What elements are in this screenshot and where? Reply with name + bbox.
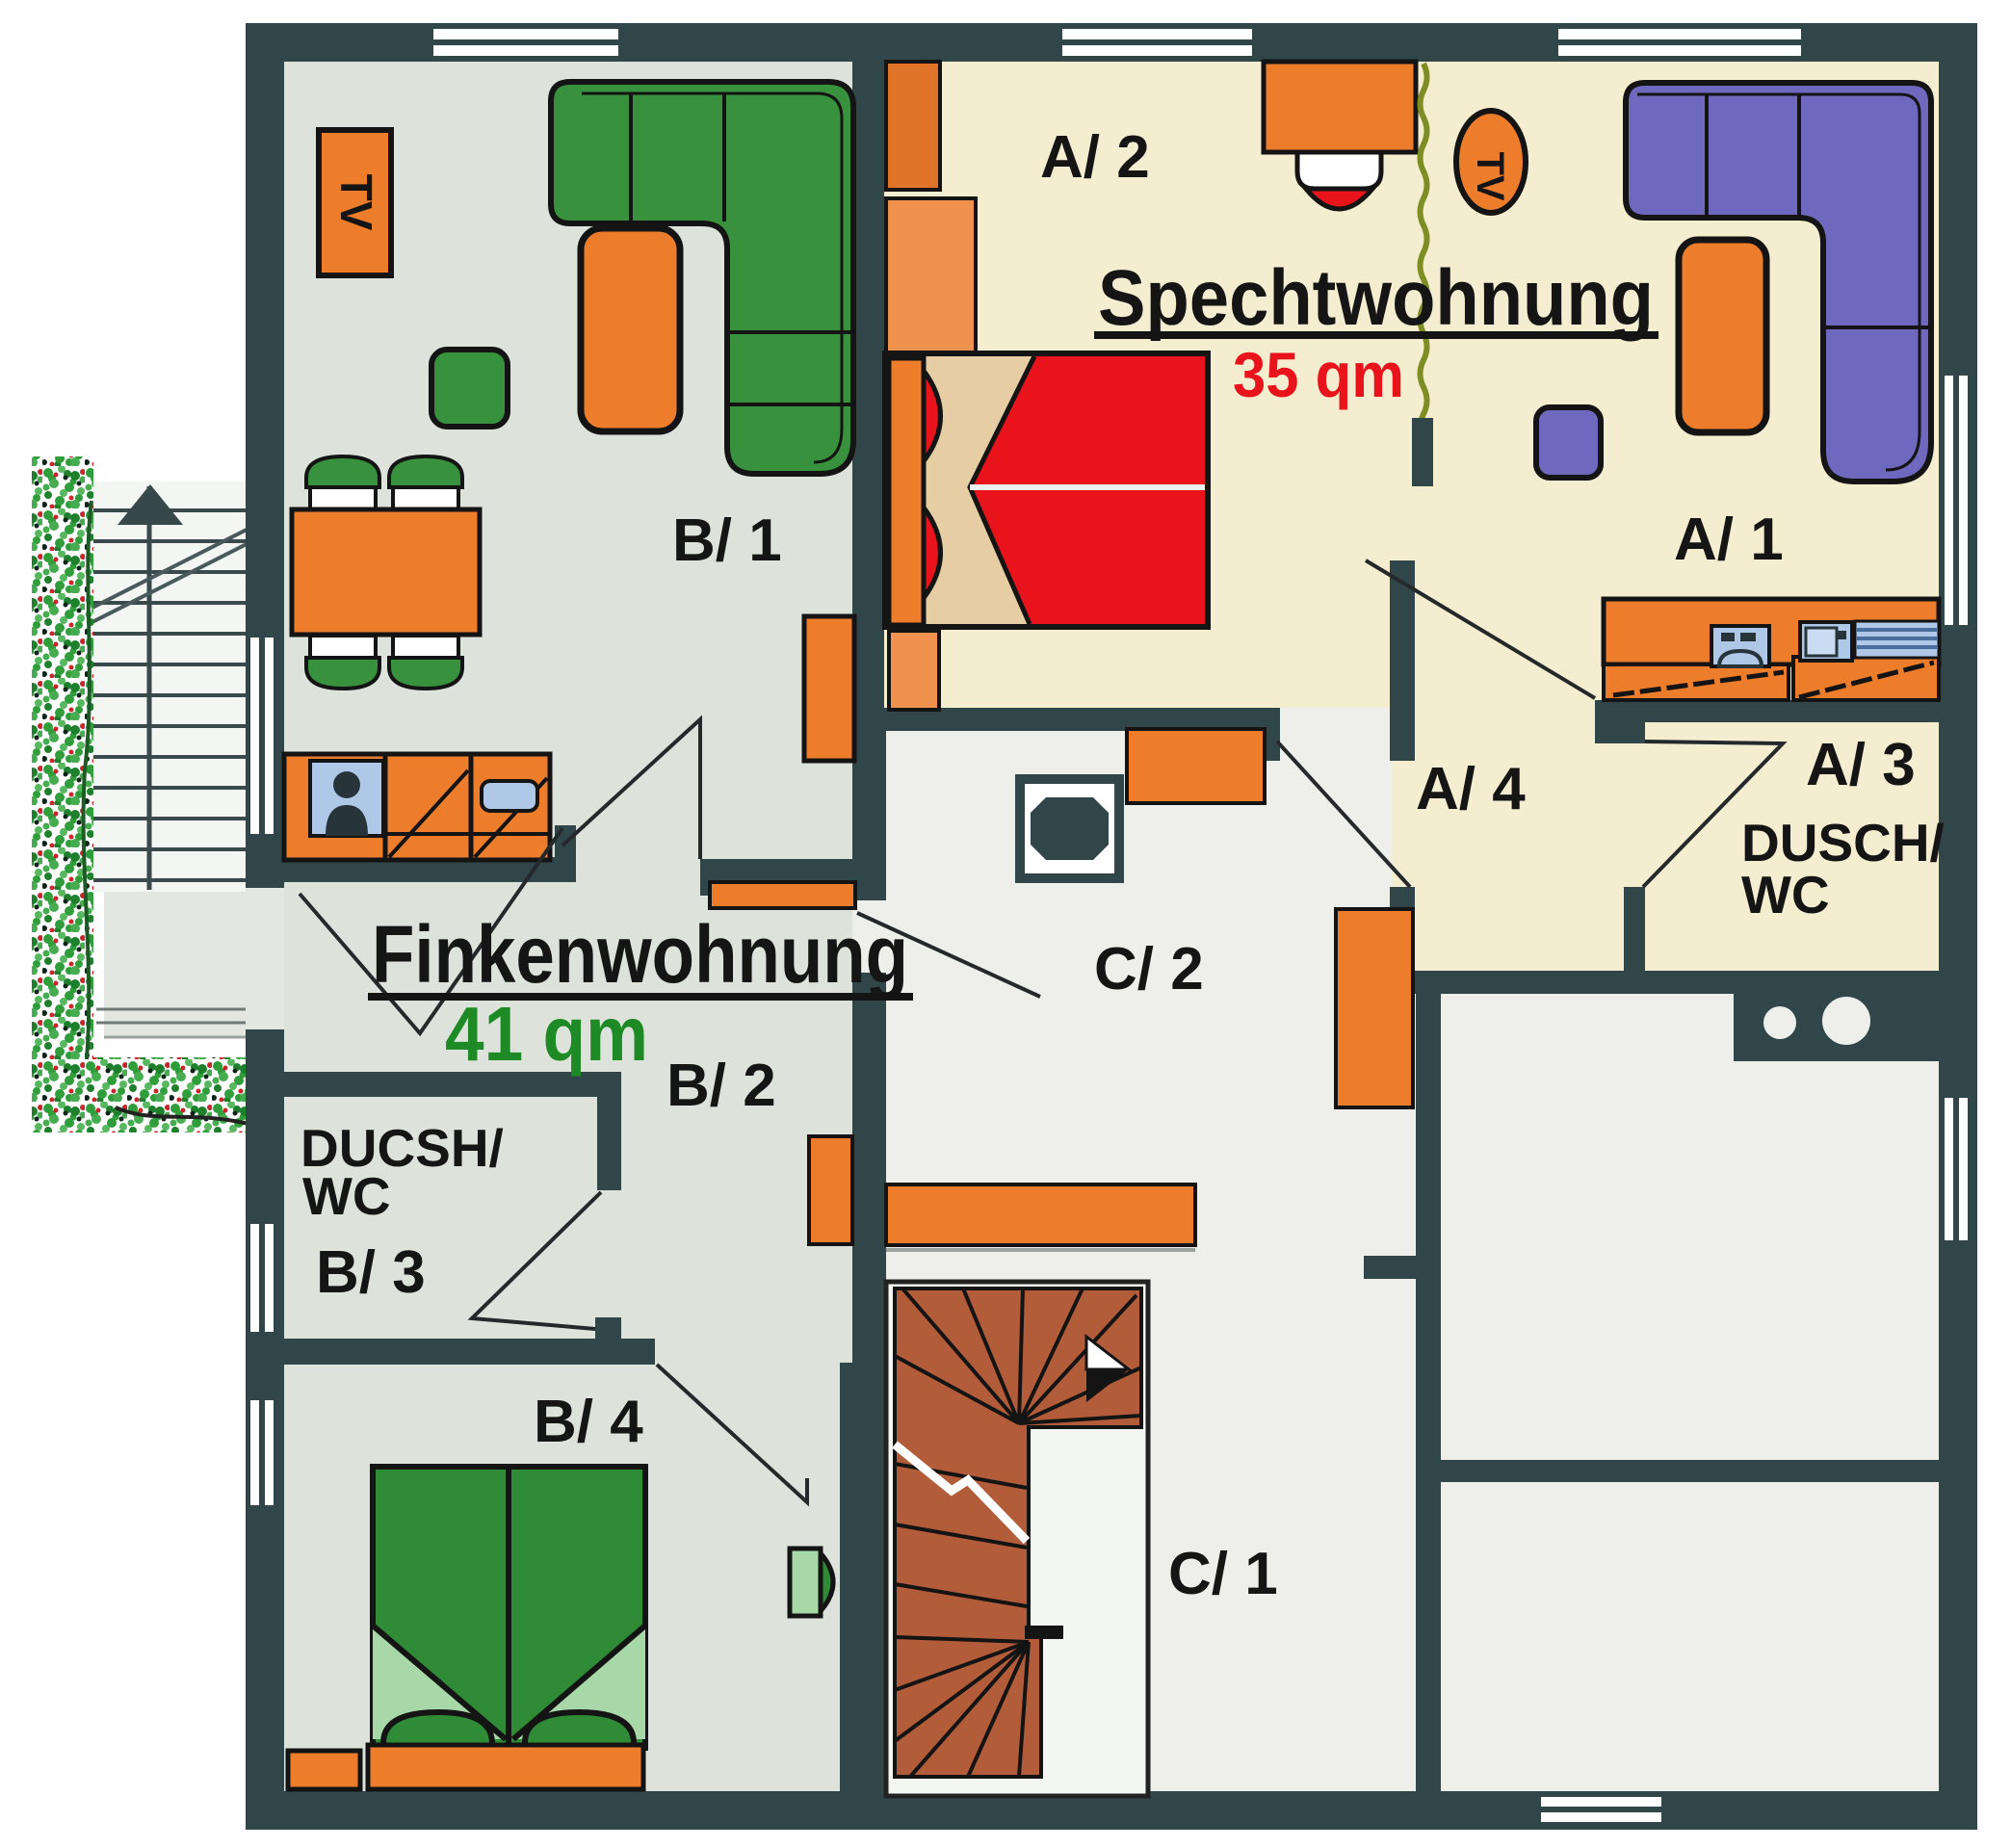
- svg-text:TV: TV: [1469, 151, 1511, 200]
- svg-text:B/ 3: B/ 3: [316, 1239, 426, 1306]
- svg-text:WC: WC: [302, 1166, 391, 1226]
- svg-text:TV: TV: [331, 174, 381, 231]
- svg-text:DUSCH/: DUSCH/: [1741, 813, 1945, 872]
- svg-text:41 qm: 41 qm: [445, 991, 648, 1077]
- svg-text:A/ 1: A/ 1: [1674, 507, 1784, 573]
- svg-text:B/ 2: B/ 2: [666, 1053, 776, 1119]
- svg-text:B/ 1: B/ 1: [672, 508, 782, 574]
- svg-text:Finkenwohnung: Finkenwohnung: [372, 909, 908, 1000]
- svg-text:C/ 2: C/ 2: [1094, 936, 1204, 1002]
- svg-text:C/ 1: C/ 1: [1168, 1541, 1278, 1607]
- svg-text:A/ 4: A/ 4: [1416, 756, 1526, 822]
- svg-text:A/ 2: A/ 2: [1040, 124, 1150, 191]
- svg-text:35 qm: 35 qm: [1233, 339, 1404, 410]
- svg-text:A/ 3: A/ 3: [1806, 732, 1916, 798]
- svg-text:B/ 4: B/ 4: [534, 1389, 643, 1455]
- svg-text:Spechtwohnung: Spechtwohnung: [1098, 254, 1654, 342]
- svg-text:WC: WC: [1741, 865, 1830, 924]
